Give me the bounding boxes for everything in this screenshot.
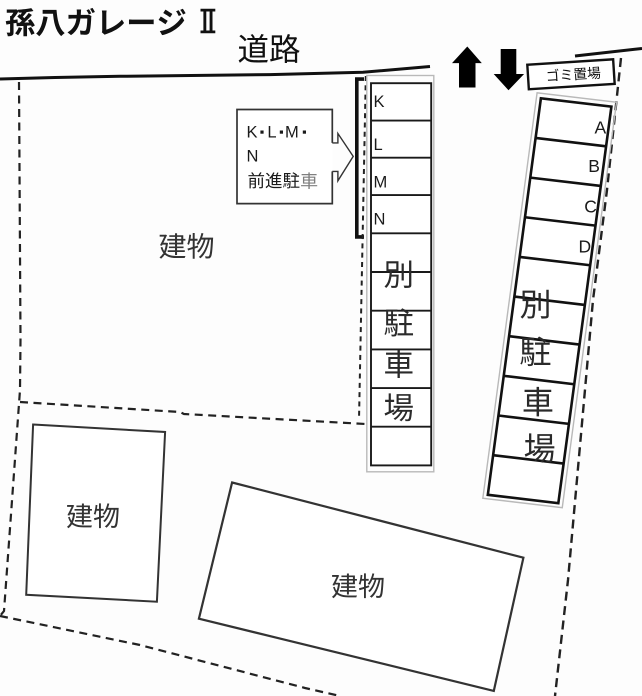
svg-text:C: C [584,197,597,217]
svg-text:L: L [267,124,276,142]
svg-text:L: L [374,136,383,154]
svg-text:N: N [247,147,259,165]
svg-text:N: N [374,210,386,228]
svg-text:A: A [594,117,606,137]
svg-text:K: K [374,93,385,111]
svg-text:M: M [285,124,299,142]
svg-text:M: M [374,174,388,192]
svg-text:B: B [588,156,600,176]
svg-text:D: D [578,236,591,256]
svg-text:K: K [247,124,258,142]
